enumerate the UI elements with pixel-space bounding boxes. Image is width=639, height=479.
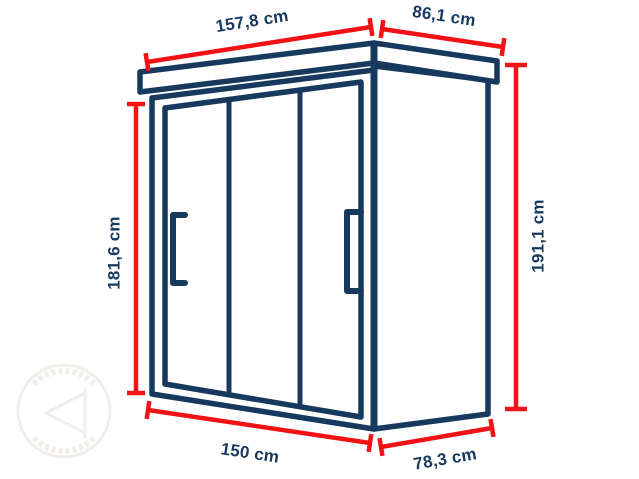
shed-right-wall	[374, 66, 488, 429]
dim-label-base-front-width: 150 cm	[219, 439, 280, 466]
shed-door-frame	[165, 82, 361, 417]
shed-dimension-drawing: 157,8 cm 86,1 cm 181,6 cm 191,1 cm	[0, 0, 639, 479]
dim-label-roof-front-width: 157,8 cm	[214, 6, 289, 36]
circular-stamp-watermark-icon	[18, 365, 110, 457]
dim-label-base-side-depth: 78,3 cm	[412, 444, 478, 473]
dim-label-roof-side-depth: 86,1 cm	[411, 2, 477, 30]
dimension-overall-height: 191,1 cm	[505, 65, 548, 409]
shed-outline	[140, 43, 497, 429]
dim-label-overall-height: 191,1 cm	[529, 199, 548, 272]
diagram-canvas: 157,8 cm 86,1 cm 181,6 cm 191,1 cm	[0, 0, 639, 479]
dim-label-left-wall-height: 181,6 cm	[105, 216, 124, 289]
dimension-left-wall-height: 181,6 cm	[105, 104, 146, 393]
